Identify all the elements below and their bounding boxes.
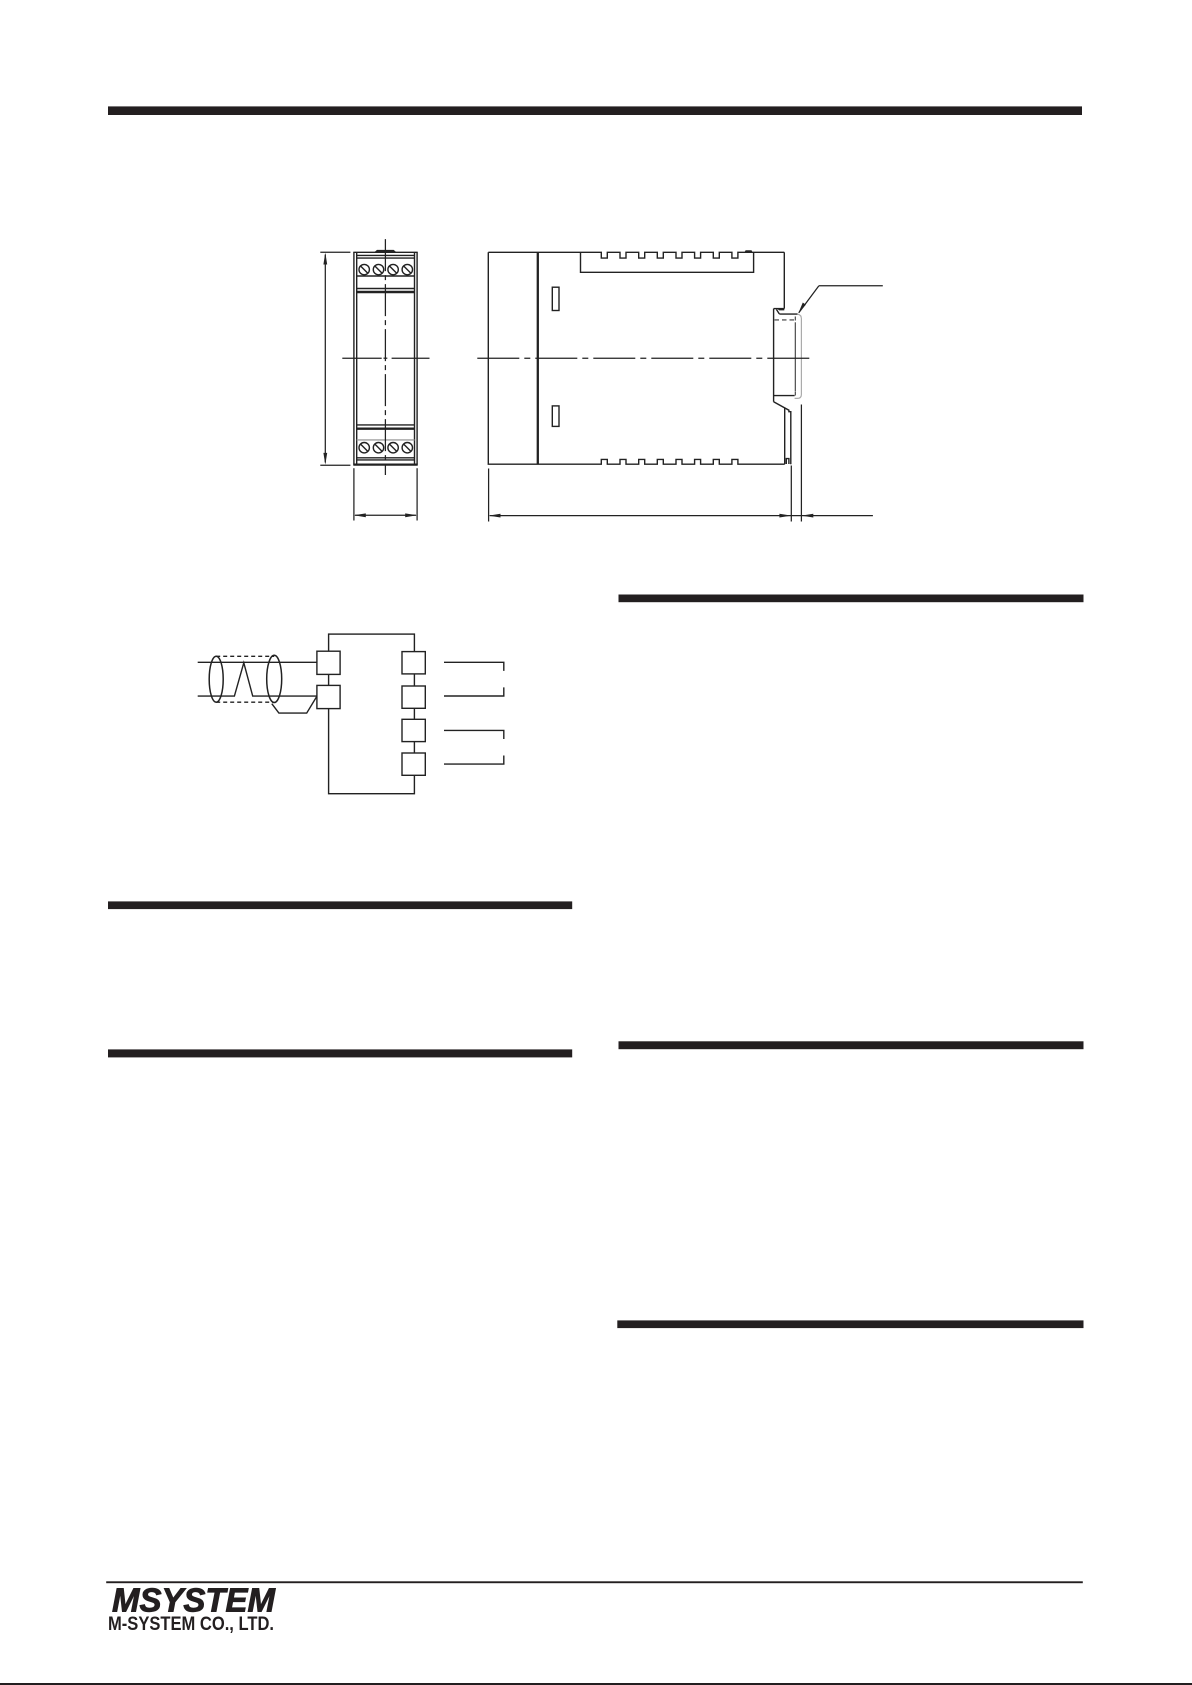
- svg-text:M-SYSTEM CO., LTD.: M-SYSTEM CO., LTD.: [108, 1614, 274, 1635]
